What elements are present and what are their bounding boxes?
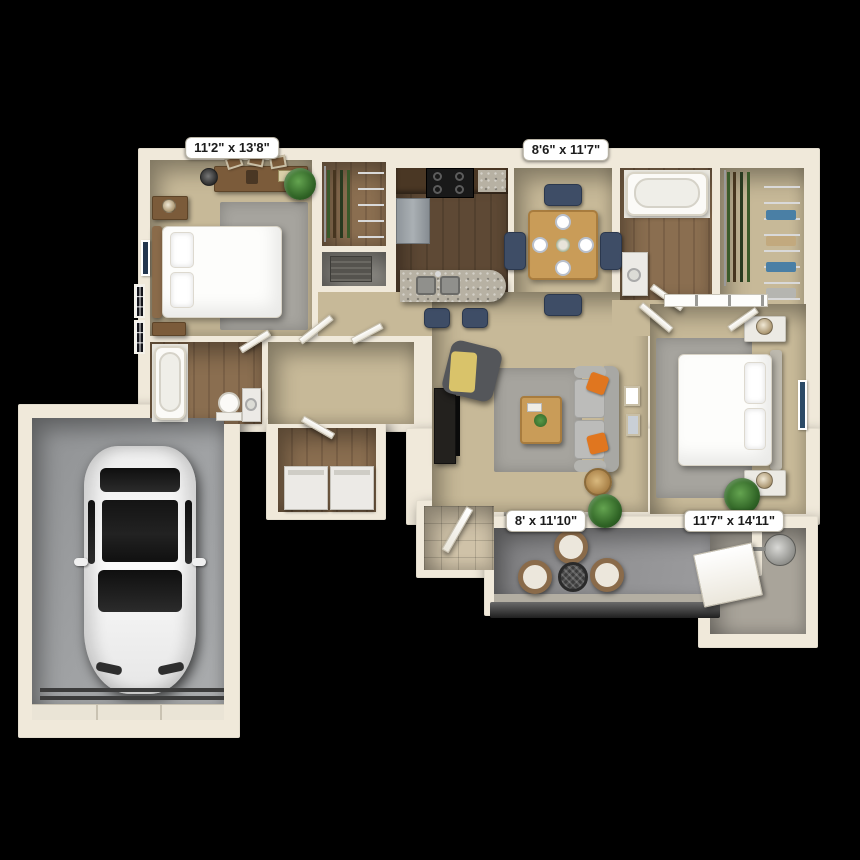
bed-2-pillow-top — [744, 362, 766, 404]
wall-art-bedroom-2 — [798, 380, 807, 430]
lamp-bedroom-1 — [162, 199, 176, 213]
stove-burner-1 — [433, 172, 442, 181]
fridge — [396, 198, 430, 244]
entry-floor — [424, 506, 494, 570]
water-heater — [764, 534, 796, 566]
lamp-bedroom-2-top — [756, 318, 773, 335]
dryer-panel — [334, 470, 370, 475]
hvac-unit — [330, 256, 372, 282]
nightstand-bedroom-1-bottom — [152, 322, 186, 336]
dining-chair-bottom — [544, 294, 582, 316]
closet-1-rod — [324, 166, 326, 242]
folded-clothes-1 — [766, 210, 796, 220]
bed-1-pillow-bottom — [170, 272, 194, 308]
plate-bottom — [555, 260, 571, 276]
window-bedroom-2 — [664, 294, 768, 307]
tub-bathroom-1-basin — [159, 352, 181, 412]
bed-1-headboard — [152, 226, 162, 318]
sink-bathroom-1 — [245, 398, 257, 411]
bed-2-pillow-bottom — [744, 408, 766, 450]
bar-stool-1 — [424, 308, 450, 328]
folded-clothes-2 — [766, 236, 796, 246]
armchair-throw-blanket — [449, 351, 478, 393]
dining-chair-left — [504, 232, 526, 270]
car-side-glass-right — [185, 500, 192, 564]
hall-1-floor — [268, 342, 414, 424]
bed-1-pillow-top — [170, 232, 194, 268]
floor-lamp — [200, 168, 218, 186]
stove-burner-2 — [455, 172, 464, 181]
closet-1-hanging-clothes — [327, 170, 352, 238]
dining-chair-right — [600, 232, 622, 270]
patio-table — [558, 562, 588, 592]
plant-bedroom-2 — [724, 478, 760, 514]
lamp-bedroom-2-bottom — [756, 472, 773, 489]
dimension-label-bedroom-2: 11'7" x 14'11" — [684, 510, 784, 532]
patio-chair-1 — [554, 530, 588, 564]
tv-console — [434, 388, 456, 464]
dresser-decor — [246, 170, 258, 184]
dining-chair-top — [544, 184, 582, 206]
kitchen-sink-right — [440, 276, 460, 295]
kitchen-sink-left — [416, 276, 436, 295]
car-roof-sunroof — [102, 500, 178, 562]
washer-panel — [288, 470, 324, 475]
bar-stool-2 — [462, 308, 488, 328]
plate-right — [578, 237, 594, 253]
garage-door-seam-1 — [96, 704, 98, 720]
window-bedroom-1-upper — [134, 284, 145, 318]
sink-bathroom-2 — [627, 268, 641, 282]
plate-top — [555, 214, 571, 230]
garage-door-track-2 — [40, 696, 224, 700]
plant-living-room — [588, 494, 622, 528]
plant-bedroom-1 — [284, 168, 316, 200]
dimension-label-dining: 8'6" x 11'7" — [523, 139, 609, 161]
toilet-tank — [216, 412, 242, 421]
garage-door-seam-2 — [160, 704, 162, 720]
kitchen-counter-right — [478, 170, 506, 192]
closet-2-hanging-clothes — [727, 172, 751, 282]
car-mirror-left — [74, 558, 88, 566]
stove-burner-3 — [433, 185, 442, 194]
window-bedroom-1-lower — [134, 320, 145, 354]
car-windshield — [98, 570, 182, 612]
table-centerpiece — [556, 238, 570, 252]
dimension-label-patio: 8' x 11'10" — [506, 510, 586, 532]
coffee-table-book — [527, 403, 542, 412]
coffee-table-plant — [534, 414, 547, 427]
folded-clothes-3 — [766, 262, 796, 272]
garage-door-track-1 — [40, 688, 224, 692]
floor-plan: 11'2" x 13'8" 8'6" x 11'7" 8' x 11'10" 1… — [0, 0, 860, 860]
plate-left — [532, 237, 548, 253]
gallery-frame-1 — [624, 386, 640, 406]
side-table — [584, 468, 612, 496]
kitchen-faucet — [435, 271, 441, 277]
folded-clothes-4 — [766, 288, 796, 298]
stove-burner-4 — [455, 185, 464, 194]
patio-chair-2 — [518, 560, 552, 594]
gallery-frame-2 — [626, 414, 640, 436]
car-rear-window — [100, 468, 180, 492]
closet-1-shelves — [358, 172, 384, 238]
garage-door — [32, 704, 224, 720]
dimension-label-bedroom-1: 11'2" x 13'8" — [185, 137, 279, 159]
patio-railing — [490, 602, 720, 618]
toilet — [218, 392, 240, 414]
tub-bathroom-2-basin — [634, 178, 700, 208]
closet-2-rod — [724, 170, 726, 286]
patio-chair-3 — [590, 558, 624, 592]
car-mirror-right — [192, 558, 206, 566]
tv-screen — [456, 396, 460, 456]
wall-art-bedroom-1 — [141, 240, 150, 276]
car-side-glass-left — [88, 500, 95, 564]
